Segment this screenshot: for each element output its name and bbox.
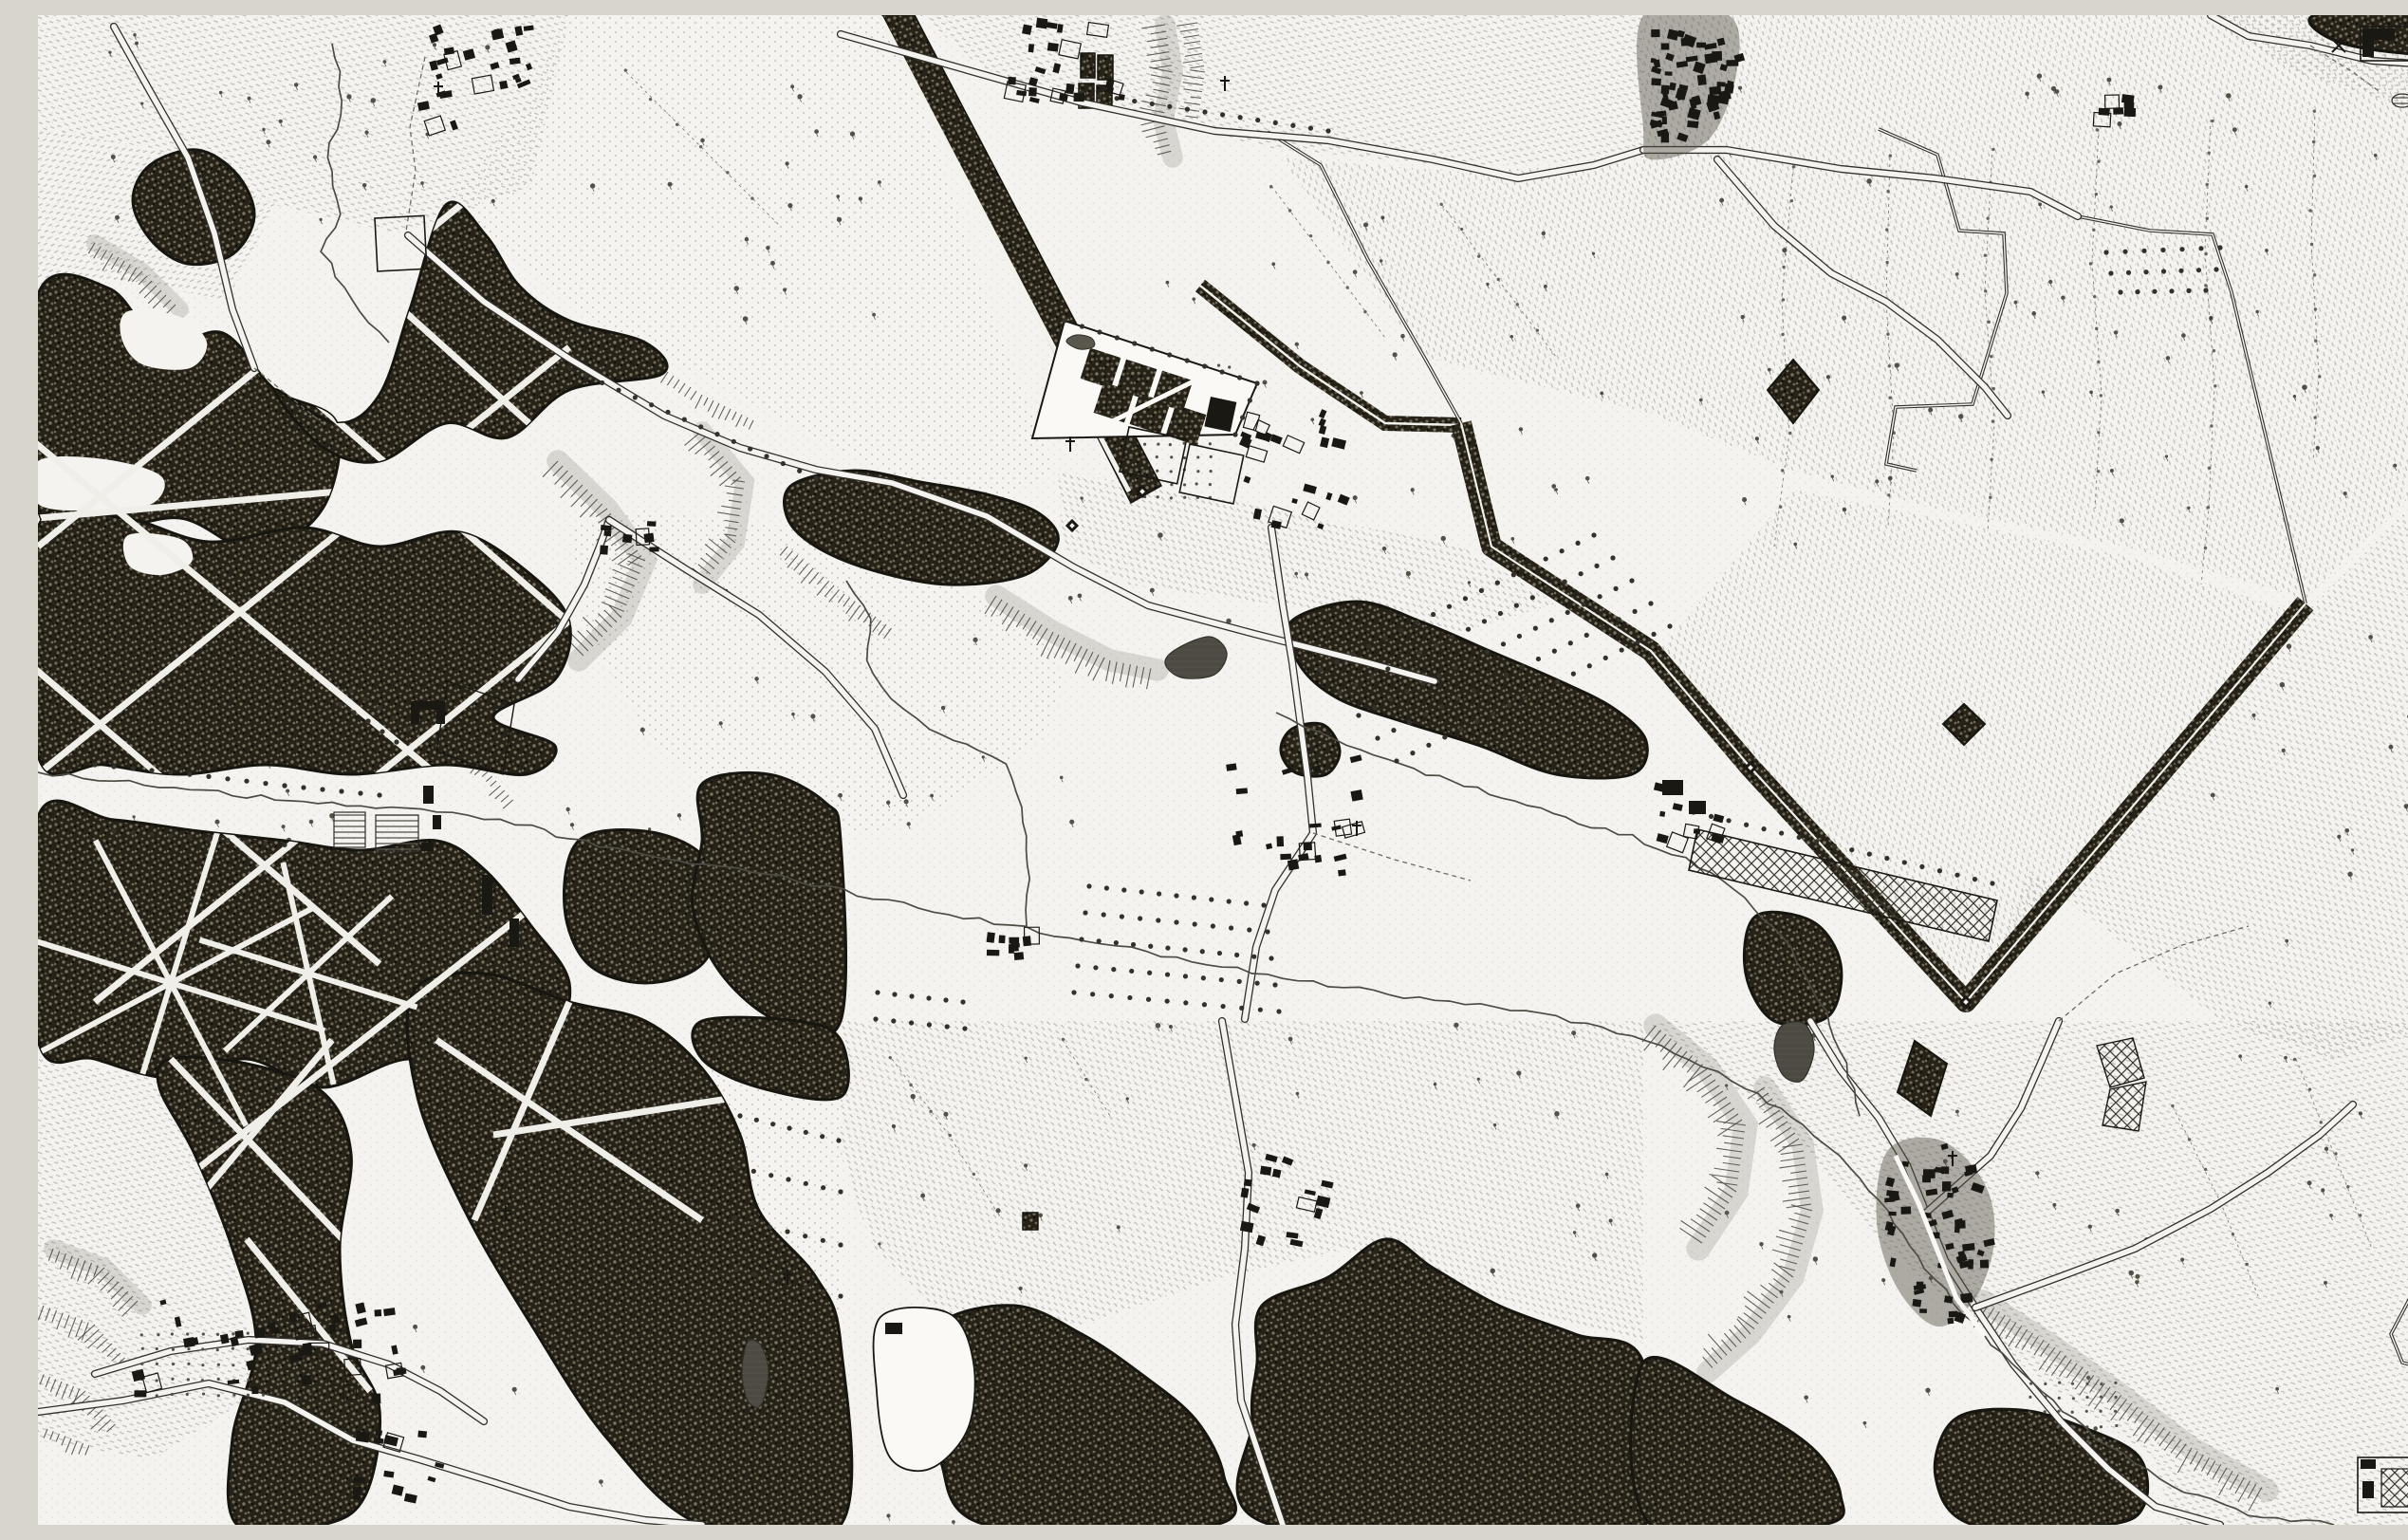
- tree-row-tree: [1086, 883, 1091, 888]
- orchard-tree: [1209, 442, 1212, 445]
- tree-icon: [700, 139, 704, 142]
- corner-garden-lattice: [2381, 1469, 2408, 1507]
- tree-row-tree: [768, 1225, 772, 1230]
- tree-row-tree: [187, 771, 192, 776]
- orchard-tree: [1157, 443, 1159, 446]
- tree-icon: [1699, 399, 1703, 402]
- tree-row-tree: [1420, 681, 1425, 686]
- tree-icon: [770, 261, 775, 266]
- tree-icon: [2031, 311, 2036, 316]
- tree-row-tree: [2143, 269, 2148, 274]
- tree-icon: [2368, 635, 2373, 640]
- tree-icon: [566, 807, 570, 811]
- tree-icon: [2211, 793, 2215, 798]
- tree-row-tree: [1568, 640, 1573, 645]
- tree-icon: [2287, 643, 2291, 648]
- tree-row-tree: [1832, 844, 1837, 848]
- tree-row-tree: [1157, 891, 1161, 896]
- orchard-tree: [140, 1333, 143, 1336]
- tree-icon: [2232, 127, 2237, 132]
- tree-icon: [1454, 1023, 1458, 1028]
- orchard-tree: [2085, 1396, 2088, 1399]
- tree-icon: [2269, 1002, 2271, 1005]
- orchard-tree: [1170, 496, 1173, 499]
- tree-icon: [1740, 315, 1744, 319]
- tree-icon: [766, 246, 769, 250]
- tree-icon: [2251, 714, 2255, 717]
- tree-row-tree: [92, 762, 97, 767]
- tree-icon: [2088, 1224, 2092, 1228]
- tree-row-tree: [1165, 945, 1170, 950]
- tree-icon: [1519, 427, 1523, 431]
- tree-row-tree: [785, 1229, 789, 1234]
- tree-row-tree: [1466, 627, 1471, 632]
- tree-icon: [135, 42, 139, 46]
- tree-icon: [2106, 78, 2111, 83]
- tree-icon: [1406, 571, 1411, 576]
- tree-row-tree: [1102, 912, 1106, 917]
- tree-row-tree: [1156, 918, 1160, 922]
- map-sheet: [38, 15, 2408, 1525]
- tree-row-tree: [1472, 688, 1476, 693]
- orchard-tree: [201, 1347, 204, 1350]
- tree-icon: [1738, 86, 1742, 90]
- tree-row-tree: [751, 1169, 756, 1174]
- tree-icon: [590, 183, 595, 188]
- tree-row-tree: [1415, 620, 1419, 624]
- tree-icon: [785, 161, 788, 165]
- orchard-tree: [2113, 1439, 2116, 1442]
- tree-row-tree: [1104, 885, 1109, 890]
- tree-icon: [2165, 455, 2168, 457]
- tree-icon: [1925, 1388, 1930, 1393]
- tree-icon: [1400, 334, 1405, 339]
- tree-row-tree: [1667, 623, 1672, 628]
- orchard-tree: [186, 1332, 189, 1335]
- orchard-tree: [277, 1333, 280, 1336]
- orchard-tree: [2085, 1410, 2088, 1413]
- orchard-tree: [2115, 1424, 2118, 1427]
- tree-row-tree: [1587, 663, 1592, 668]
- water-basin: [334, 812, 365, 847]
- tree-icon: [1353, 495, 1358, 500]
- tree-row-tree: [1528, 565, 1532, 569]
- orchard-tree: [247, 1379, 250, 1382]
- tree-row-tree: [1479, 588, 1484, 593]
- tree-row-tree: [2141, 249, 2146, 253]
- tree-row-tree: [1990, 881, 1994, 885]
- wood-square: [1098, 55, 1113, 80]
- tree-row-tree: [1426, 743, 1431, 748]
- tree-row-tree: [1867, 852, 1872, 857]
- tree-row-tree: [1138, 916, 1142, 920]
- tree-icon: [982, 755, 985, 758]
- tree-row-tree: [244, 840, 249, 844]
- tree-icon: [1069, 820, 1074, 825]
- tree-row-tree: [1594, 564, 1599, 568]
- orchard-tree: [2028, 1396, 2031, 1399]
- building-block: [433, 815, 441, 829]
- tree-icon: [1755, 436, 1759, 440]
- tree-row-tree: [1202, 109, 1207, 114]
- tree-row-tree: [714, 432, 719, 436]
- tree-icon: [2285, 939, 2288, 943]
- tree-icon: [972, 638, 977, 642]
- tree-icon: [1544, 285, 1547, 288]
- tree-icon: [920, 1194, 925, 1198]
- tree-row-tree: [1504, 673, 1509, 677]
- orchard-tree: [2086, 1439, 2089, 1442]
- tree-icon: [115, 215, 120, 220]
- orchard-tree: [1157, 495, 1159, 498]
- tree-row-tree: [1382, 636, 1387, 640]
- tree-icon: [1353, 269, 1358, 274]
- tree-icon: [2038, 202, 2042, 206]
- orchard-tree: [141, 1347, 144, 1350]
- tree-row-tree: [909, 993, 914, 998]
- tree-row-tree: [1536, 657, 1541, 661]
- tree-row-tree: [733, 1267, 738, 1271]
- tree-icon: [1169, 1025, 1173, 1029]
- tree-icon: [248, 97, 251, 101]
- orchard-tree: [156, 1379, 158, 1382]
- tree-row-tree: [244, 779, 249, 784]
- tree-row-tree: [1129, 969, 1134, 974]
- building-block: [2362, 28, 2374, 57]
- orchard-tree: [1157, 482, 1159, 485]
- orchard-tree: [1210, 470, 1213, 473]
- tree-icon: [420, 1365, 425, 1370]
- tree-icon: [2329, 1214, 2333, 1217]
- tree-icon: [1434, 1083, 1436, 1085]
- tree-icon: [413, 1325, 417, 1329]
- tree-icon: [2166, 356, 2171, 361]
- tree-row-tree: [945, 1024, 950, 1029]
- tree-row-tree: [820, 1134, 824, 1139]
- tree-row-tree: [2103, 250, 2108, 254]
- tree-row-tree: [748, 446, 752, 451]
- tree-icon: [1126, 1097, 1129, 1100]
- tree-icon: [2302, 384, 2307, 390]
- tree-row-tree: [1603, 656, 1608, 660]
- orchard-tree: [1142, 482, 1145, 485]
- tree-icon: [2114, 330, 2118, 334]
- tree-row-tree: [1530, 595, 1535, 600]
- tree-row-tree: [149, 832, 154, 837]
- tree-row-tree: [2169, 288, 2174, 293]
- tree-icon: [286, 789, 289, 792]
- tree-icon: [2293, 395, 2296, 398]
- tree-row-tree: [1849, 847, 1854, 852]
- orchard-tree: [2114, 1410, 2117, 1413]
- tree-row-tree: [282, 783, 287, 788]
- tree-icon: [1360, 391, 1363, 395]
- tree-row-tree: [892, 992, 897, 996]
- tree-row-tree: [1211, 923, 1215, 928]
- tree-icon: [995, 1208, 1000, 1213]
- tree-icon: [2061, 296, 2065, 300]
- tree-icon: [1804, 1395, 1808, 1400]
- tree-row-tree: [1337, 690, 1342, 695]
- tree-row-tree: [804, 1181, 808, 1186]
- orchard-tree: [2058, 1397, 2061, 1400]
- tree-row-tree: [600, 380, 604, 385]
- tree-row-tree: [926, 995, 931, 1000]
- tree-row-tree: [2152, 289, 2157, 294]
- orchard-tree: [1196, 470, 1199, 473]
- tree-icon: [1411, 488, 1415, 492]
- tree-row-tree: [1146, 997, 1151, 1002]
- orchard-tree: [1143, 443, 1146, 446]
- tree-row-tree: [2135, 289, 2139, 294]
- tree-row-tree: [821, 1238, 825, 1243]
- tree-icon: [677, 813, 681, 817]
- orchard-tree: [2057, 1410, 2060, 1413]
- tree-row-tree: [1255, 118, 1260, 122]
- tree-row-tree: [754, 1118, 759, 1123]
- orchard-tree: [2100, 1382, 2102, 1385]
- tree-row-tree: [1090, 992, 1095, 996]
- orchard-tree: [1183, 496, 1186, 499]
- tree-icon: [1592, 1252, 1597, 1257]
- tree-row-tree: [405, 726, 410, 731]
- tree-row-tree: [1185, 107, 1190, 112]
- tree-row-tree: [1544, 556, 1548, 561]
- tree-icon: [313, 155, 317, 158]
- orchard-tree: [278, 1347, 281, 1350]
- orchard-tree: [1170, 470, 1173, 473]
- tree-row-tree: [1514, 603, 1519, 608]
- tree-icon: [420, 181, 424, 185]
- tree-row-tree: [1501, 641, 1506, 646]
- tree-row-tree: [750, 1220, 754, 1225]
- tree-icon: [907, 822, 911, 826]
- tree-icon: [783, 288, 787, 291]
- tree-row-tree: [1148, 944, 1153, 949]
- orchard-tree: [2085, 1425, 2088, 1428]
- tree-row-tree: [1632, 609, 1637, 614]
- orchard-tree: [247, 1332, 250, 1335]
- tree-row-tree: [351, 710, 356, 714]
- tree-row-tree: [1954, 873, 1959, 878]
- tree-row-tree: [130, 830, 135, 835]
- tree-row-tree: [1290, 123, 1295, 128]
- tree-icon: [2042, 390, 2046, 394]
- tree-icon: [1605, 1173, 1609, 1177]
- tree-row-tree: [1919, 864, 1924, 869]
- tree-icon: [371, 98, 376, 102]
- tree-icon: [1958, 414, 1963, 418]
- tree-row-tree: [764, 454, 769, 458]
- tree-row-tree: [665, 410, 670, 415]
- tree-icon: [1719, 198, 1724, 203]
- tree-row-tree: [337, 701, 342, 706]
- tree-row-tree: [1629, 578, 1634, 583]
- tree-icon: [1826, 375, 1830, 379]
- tree-icon: [491, 199, 495, 203]
- tree-row-tree: [769, 1276, 773, 1281]
- tree-icon: [1782, 248, 1787, 252]
- tree-row-tree: [1601, 624, 1605, 629]
- tree-icon: [1468, 581, 1471, 584]
- orchard-tree: [1128, 443, 1131, 446]
- tree-row-tree: [1369, 675, 1374, 679]
- tree-row-tree: [1417, 651, 1422, 656]
- tree-icon: [1150, 588, 1155, 593]
- tree-icon: [2284, 1056, 2288, 1060]
- orchard-tree: [2029, 1423, 2032, 1426]
- tree-icon: [2245, 185, 2249, 189]
- tree-row-tree: [1251, 955, 1256, 959]
- orchard-tree: [202, 1332, 205, 1335]
- tree-icon: [1768, 368, 1771, 372]
- orchard-tree: [2028, 1438, 2030, 1441]
- tree-icon: [1510, 537, 1514, 541]
- orchard-tree: [187, 1363, 190, 1365]
- tree-icon: [1294, 572, 1298, 576]
- tree-row-tree: [1097, 93, 1102, 98]
- tree-icon: [1024, 1163, 1028, 1167]
- tree-icon: [2135, 1274, 2139, 1279]
- tree-icon: [1881, 1278, 1885, 1282]
- tree-icon: [2187, 507, 2190, 510]
- tree-row-tree: [1617, 617, 1621, 622]
- tree-row-tree: [583, 373, 588, 378]
- orchard-tree: [140, 1363, 143, 1365]
- tree-row-tree: [1517, 634, 1522, 639]
- orchard-tree: [172, 1348, 175, 1351]
- tree-icon: [2347, 872, 2352, 877]
- tree-row-tree: [797, 469, 802, 473]
- tree-row-tree: [1139, 889, 1144, 894]
- tree-row-tree: [1610, 555, 1615, 560]
- tree-row-tree: [1423, 712, 1428, 716]
- tree-icon: [1025, 1057, 1028, 1060]
- tree-icon: [1310, 417, 1314, 421]
- tree-icon: [1888, 476, 1893, 481]
- tree-row-tree: [1884, 856, 1889, 861]
- tree-icon: [668, 182, 673, 187]
- tree-row-tree: [803, 1234, 807, 1238]
- tree-row-tree: [1469, 658, 1473, 662]
- tree-row-tree: [1334, 659, 1339, 664]
- tree-row-tree: [1247, 927, 1251, 932]
- water-basin: [376, 815, 418, 851]
- tree-icon: [111, 155, 116, 159]
- orchard-tree: [2044, 1424, 2047, 1427]
- tree-icon: [1875, 479, 1879, 483]
- tree-icon: [859, 196, 862, 200]
- building-block: [1689, 801, 1706, 814]
- tree-icon: [2052, 1203, 2056, 1207]
- orchard-tree: [157, 1333, 159, 1336]
- tree-row-tree: [1455, 696, 1460, 701]
- tree-icon: [745, 237, 750, 242]
- tree-icon: [2307, 1180, 2312, 1185]
- tree-row-tree: [1937, 868, 1942, 873]
- tree-row-tree: [566, 365, 571, 370]
- tree-row-tree: [1353, 682, 1358, 687]
- orchard-tree: [2029, 1382, 2032, 1384]
- tree-row-tree: [1200, 949, 1205, 954]
- tree-row-tree: [1385, 666, 1390, 671]
- tree-icon: [266, 139, 270, 144]
- tree-row-tree: [206, 836, 211, 841]
- orchard-tree: [1156, 455, 1158, 458]
- tree-icon: [599, 1479, 603, 1484]
- orchard-tree: [2100, 1396, 2102, 1399]
- orchard-tree: [156, 1394, 158, 1397]
- tree-row-tree: [2160, 248, 2165, 252]
- orchard-tree: [961, 1445, 964, 1448]
- tree-icon: [1554, 1111, 1559, 1116]
- orchard-tree: [217, 1378, 220, 1381]
- orchard-tree: [308, 1331, 311, 1334]
- tree-row-tree: [1114, 940, 1119, 945]
- tree-row-tree: [1097, 938, 1102, 943]
- tree-row-tree: [732, 1215, 736, 1220]
- tree-icon: [108, 51, 111, 54]
- tree-row-tree: [1398, 628, 1403, 633]
- tree-icon: [797, 94, 802, 99]
- orchard-tree: [2100, 1425, 2102, 1428]
- tree-row-tree: [1276, 1009, 1281, 1013]
- tree-icon: [1166, 281, 1170, 285]
- orchard-tree: [2114, 1396, 2117, 1399]
- tree-row-tree: [1636, 640, 1640, 644]
- tree-icon: [943, 1112, 948, 1117]
- tree-row-tree: [1183, 1000, 1188, 1005]
- orchard-tree: [201, 1379, 204, 1382]
- tree-icon: [1441, 536, 1446, 541]
- tree-icon: [1793, 543, 1797, 547]
- tree-row-tree: [1902, 860, 1907, 864]
- tree-row-tree: [1265, 929, 1269, 934]
- tree-row-tree: [1762, 826, 1767, 831]
- orchard-tree: [186, 1393, 189, 1396]
- tree-row-tree: [649, 402, 654, 407]
- tree-row-tree: [2178, 269, 2183, 273]
- tree-icon: [790, 84, 794, 88]
- tree-row-tree: [1209, 897, 1213, 901]
- orchard-tree: [1142, 470, 1145, 473]
- tree-row-tree: [391, 715, 396, 720]
- tree-icon: [2037, 73, 2042, 78]
- orchard-tree: [1129, 456, 1132, 459]
- orchard-tree: [1183, 483, 1186, 486]
- tree-row-tree: [2161, 269, 2166, 273]
- tree-row-tree: [821, 1185, 825, 1190]
- tree-icon: [1158, 532, 1163, 538]
- tree-row-tree: [377, 792, 381, 797]
- tree-row-tree: [1120, 914, 1124, 918]
- tree-row-tree: [873, 1016, 878, 1021]
- tree-row-tree: [1202, 1002, 1207, 1007]
- tree-row-tree: [1613, 586, 1618, 591]
- map-layers: [38, 15, 2408, 1525]
- orchard-tree: [1195, 482, 1198, 485]
- tree-row-tree: [1109, 993, 1114, 998]
- tree-row-tree: [1083, 910, 1087, 915]
- tree-icon: [1842, 316, 1846, 321]
- tree-row-tree: [836, 1138, 841, 1142]
- orchard-tree: [2044, 1410, 2047, 1413]
- orchard-tree: [202, 1392, 205, 1395]
- tree-row-tree: [1511, 572, 1516, 577]
- tree-icon: [2110, 205, 2113, 208]
- orchard-tree: [1130, 495, 1133, 498]
- orchard-tree: [156, 1347, 158, 1350]
